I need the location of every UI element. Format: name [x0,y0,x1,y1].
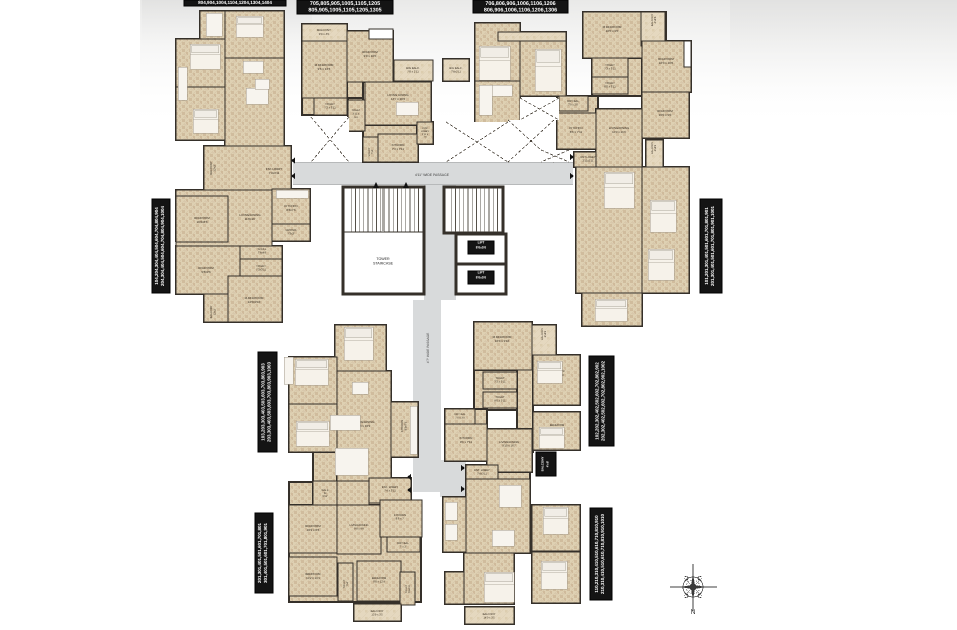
svg-text:KITCHEN8'6 x 7': KITCHEN8'6 x 7' [394,513,406,521]
svg-text:110,210,310,410,510,610,710,81: 110,210,310,410,510,610,710,810,910 [594,515,599,593]
svg-text:ENT. LOBBY7'4 x 3'11: ENT. LOBBY7'4 x 3'11 [382,485,398,493]
svg-text:KITCHEN7'4 x 7'11: KITCHEN7'4 x 7'11 [392,143,405,151]
svg-text:8'6x5'6: 8'6x5'6 [476,275,487,279]
svg-text:804,904,1004,1104,1204,1304,14: 804,904,1004,1104,1204,1304,1404 [198,0,272,5]
svg-text:103,203,303,403,503,603,703,80: 103,203,303,403,503,603,703,803,903 [260,363,265,441]
svg-text:BEDROOM10'2 x 8'6: BEDROOM10'2 x 8'6 [305,524,321,532]
svg-text:101,201,301,401,501,601,701,80: 101,201,301,401,501,601,701,801,901 [704,207,709,285]
svg-text:TOILET7'3 x 3'11: TOILET7'3 x 3'11 [494,377,506,384]
svg-text:KITCHEN8'6x7'6: KITCHEN8'6x7'6 [284,204,297,212]
svg-text:301,401,501,601,701,801,901: 301,401,501,601,701,801,901 [263,522,268,583]
svg-text:706,806,906,1006,1106,1206: 706,806,906,1006,1106,1206 [485,1,555,7]
svg-text:BALCONY: BALCONY [541,457,545,472]
svg-text:LIFT: LIFT [478,271,485,275]
svg-text:4'7" WIDE PASSAGE: 4'7" WIDE PASSAGE [426,333,430,363]
svg-text:TOILET7'3 x 3'11: TOILET7'3 x 3'11 [604,63,616,71]
svg-text:TOILET8'0 x 3'11: TOILET8'0 x 3'11 [494,396,506,403]
svg-text:806,906,1006,1106,1206,1306: 806,906,1006,1106,1206,1306 [484,8,557,14]
svg-text:4'11" WIDE PASSAGE: 4'11" WIDE PASSAGE [415,173,450,177]
svg-text:BEDROOM9'0 x 10'0: BEDROOM9'0 x 10'0 [362,50,378,58]
svg-text:204,304,404,504,604,704,804,90: 204,304,404,504,604,704,804,904,1004 [160,205,165,286]
svg-text:BALCONY9'0 x 4'0: BALCONY9'0 x 4'0 [317,28,331,36]
svg-text:DRY BAL7'0 x 3'0: DRY BAL7'0 x 3'0 [454,413,466,420]
svg-text:KITCHEN8'6x7'6: KITCHEN8'6x7'6 [400,420,407,432]
svg-text:N: N [690,609,695,616]
svg-text:201,301,401,501,601,701,801: 201,301,401,501,601,701,801 [257,522,262,583]
svg-text:BEDROOM9'8 x 12'4: BEDROOM9'8 x 12'4 [372,576,387,584]
svg-text:805,905,1005,1105,1205,1305: 805,905,1005,1105,1205,1305 [308,8,381,14]
svg-text:M BEDROOM10'0 x 9'10: M BEDROOM10'0 x 9'10 [493,335,512,343]
svg-text:201,301,401,501,601,701,801,90: 201,301,401,501,601,701,801,901,1001 [710,205,715,286]
svg-text:KITCHEN8'6 x 7'11: KITCHEN8'6 x 7'11 [569,126,582,134]
svg-text:LIFT: LIFT [478,241,485,245]
svg-text:203,303,403,503,603,703,803,90: 203,303,403,503,603,703,803,903,1003 [267,361,272,442]
svg-text:TOILET7'3 x 3'11: TOILET7'3 x 3'11 [324,102,336,110]
svg-text:TOILET8'0 x 3'11: TOILET8'0 x 3'11 [604,81,616,89]
svg-text:BIG BALC.7'8x2'11: BIG BALC.7'8x2'11 [449,67,462,74]
svg-text:210,310,410,510,610,710,810,91: 210,310,410,510,610,710,810,910,1010 [600,513,605,594]
svg-text:202,302,402,502,602,702,802,90: 202,302,402,502,602,702,802,902,1002 [601,360,606,441]
svg-text:104,204,304,404,504,604,704,80: 104,204,304,404,504,604,704,804,904 [154,207,159,285]
svg-text:TOILET7'6x3'11: TOILET7'6x3'11 [405,584,411,593]
svg-text:BIG BALC.7'8 x 2'11: BIG BALC.7'8 x 2'11 [406,66,420,74]
svg-text:SCULL7'6x4'6: SCULL7'6x4'6 [258,248,267,255]
svg-text:KITCHEN8'6 x 7'11: KITCHEN8'6 x 7'11 [460,436,473,444]
svg-text:8'6x5'6: 8'6x5'6 [476,245,487,249]
svg-text:BEDROOM10'0 x 10'0: BEDROOM10'0 x 10'0 [658,57,674,65]
svg-text:705,805,905,1005,1105,1205: 705,805,905,1005,1105,1205 [310,1,380,7]
svg-text:BALCONY13'9 x 3'5: BALCONY13'9 x 3'5 [371,610,384,617]
svg-text:ENT LOBBY3'11x3'11: ENT LOBBY3'11x3'11 [580,156,595,163]
svg-text:102,202,302,402,502,602,702,80: 102,202,302,402,502,602,702,802,902 [594,362,599,440]
svg-text:BEDROOM10'0 x 9'0: BEDROOM10'0 x 9'0 [657,109,673,117]
svg-text:DRY BAL7'0 x 3'0: DRY BAL7'0 x 3'0 [567,100,579,107]
svg-text:BALCONY14'0 x 3'5: BALCONY14'0 x 3'5 [483,613,496,620]
svg-text:BEDROOM10'2 x 10'1: BEDROOM10'2 x 10'1 [306,572,322,580]
svg-text:4'x8': 4'x8' [545,461,549,468]
svg-text:TOILET7'3x3'11: TOILET7'3x3'11 [256,264,266,272]
